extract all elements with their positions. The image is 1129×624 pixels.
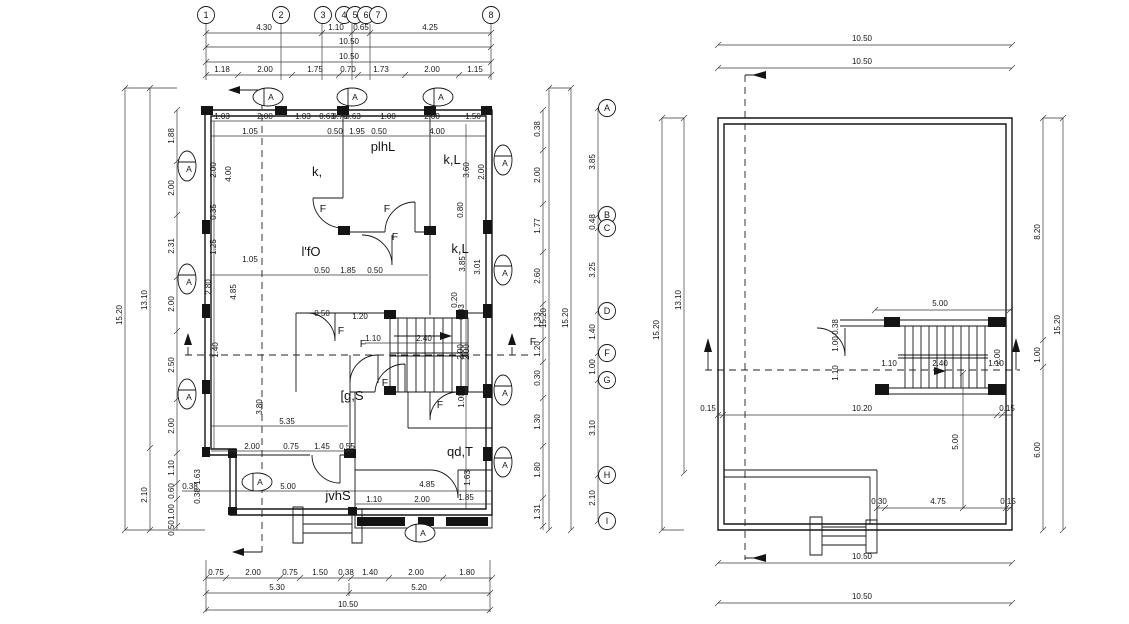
grid-label: 7 (375, 10, 380, 20)
dim-label: 3.01 (473, 259, 482, 275)
dim-label: 0.38 (338, 568, 354, 577)
dim-label: 1.10 (881, 359, 897, 368)
dim-label: 2.00 (424, 65, 440, 74)
dim-label: 1.00 (167, 504, 176, 520)
dim-int-g: 1.102.001.85 (366, 493, 474, 504)
dim-label: 1.88 (167, 128, 176, 144)
dim-label: 1.10 (167, 460, 176, 476)
window-tag: A (257, 477, 263, 487)
dim-label: 2.00 (167, 180, 176, 196)
dim-label: 5.35 (279, 417, 295, 426)
dim-label: 1.00 (457, 392, 466, 408)
dim-label: 2.10 (140, 487, 149, 503)
window-tag: A (502, 268, 508, 278)
dim-stair-center: 1.102.401.10 (881, 359, 1004, 368)
section-arrow (752, 71, 766, 79)
section-arrow (752, 554, 766, 562)
dim-label: 1.03 (295, 112, 311, 121)
dim-label: 1.20 (352, 312, 368, 321)
door-tag: F (360, 338, 366, 350)
dim-label: 10.50 (338, 600, 359, 609)
dim-label: 10.50 (339, 37, 360, 46)
dim-label: 0.48 (588, 214, 597, 230)
dim-label: 2.00 (257, 65, 273, 74)
room-label: k,L (451, 241, 468, 256)
dim-bottom1: 10.50 (852, 552, 873, 561)
dim-label: 1.00 (831, 336, 840, 352)
dim-label: 1.85 (458, 493, 474, 502)
dim-label: 1.03 (214, 112, 230, 121)
dim-label: 1.10 (328, 23, 344, 32)
dim-label: 0.38 (533, 121, 542, 137)
door-tag: F (392, 231, 398, 243)
room-label: k,L (443, 152, 460, 167)
section-arrow (1012, 338, 1020, 352)
stair-direction-arrow (934, 367, 946, 375)
grid-label: 5 (352, 10, 357, 20)
dim-label: 1.77 (533, 218, 542, 234)
dim-label: 2.10 (588, 490, 597, 506)
column-block (988, 317, 1006, 327)
dim-label: 0.55 (339, 442, 355, 451)
dim-label: 0.38 (193, 488, 202, 504)
room-label: plhL (371, 139, 396, 154)
dim-label: 1.45 (314, 442, 330, 451)
dim-label: 3.25 (588, 262, 597, 278)
dim-label: 4.30 (256, 23, 272, 32)
dim-label: 0.30 (533, 370, 542, 386)
door-tag: F (530, 336, 536, 348)
column-block (884, 317, 900, 327)
column-block (202, 220, 210, 234)
dim-label: 1.05 (242, 255, 258, 264)
dim-label: 10.50 (339, 52, 360, 61)
dim-label: 4.00 (224, 166, 233, 182)
dim-label: 1.30 (533, 414, 542, 430)
dim-label: 15.20 (115, 304, 124, 325)
dim-label: 6.00 (1033, 442, 1042, 458)
dim-label: 2.00 (209, 162, 218, 178)
dim-label: 13.10 (140, 289, 149, 310)
dim-label: 2.00 (477, 164, 486, 180)
dim-label: 0.15 (999, 404, 1015, 413)
dim-label: 1.25 (209, 239, 218, 255)
dim-label: 5.00 (280, 482, 296, 491)
section-arrow (704, 338, 712, 352)
door-tag: F (382, 377, 388, 389)
grid-label: 8 (488, 10, 493, 20)
window-tag: A (502, 460, 508, 470)
dim-label: 1.40 (362, 568, 378, 577)
dim-right-outer: 15.2015.20 (539, 307, 570, 328)
dim-label: 4.75 (930, 497, 946, 506)
column-block (483, 384, 492, 398)
dim-label: 0.75 (282, 568, 298, 577)
window-tag: A (502, 388, 508, 398)
grid-label: 6 (363, 10, 368, 20)
dim-label: 1.00 (588, 359, 597, 375)
window-tag: A (186, 392, 192, 402)
dim-label: 3.85 (588, 154, 597, 170)
dim-right-chain: 8.201.006.00 (1033, 224, 1042, 458)
room-label: l'fO (301, 244, 320, 259)
dim-label: 0.50 (367, 266, 383, 275)
grid-label: 3 (320, 10, 325, 20)
dim-label: 0.50 (314, 266, 330, 275)
grid-label: B (604, 210, 610, 220)
dim-left-chain: 1.882.002.312.002.502.001.100.601.000.50 (167, 128, 176, 536)
dim-label: 0.50 (327, 127, 343, 136)
entrance-steps (810, 517, 877, 555)
grid-label: I (606, 516, 609, 526)
dim-label: 0.63 (345, 112, 361, 121)
exterior-wall-outline (718, 118, 1012, 530)
dim-label: 2.60 (533, 268, 542, 284)
grid-label: C (604, 223, 611, 233)
room-label: k, (312, 164, 322, 179)
stair-direction-arrow (440, 332, 452, 340)
dim-label: 1.10 (366, 495, 382, 504)
column-block (228, 449, 237, 458)
dim-label: 10.50 (852, 34, 873, 43)
grid-label: 2 (278, 10, 283, 20)
dim-label: 2.00 (408, 568, 424, 577)
dim-label: 0.35 (209, 204, 218, 220)
dim-bottom3: 10.50 (338, 600, 359, 609)
dim-label: 3.10 (588, 420, 597, 436)
dim-label: 0.30 (871, 497, 887, 506)
column-block (338, 226, 350, 235)
dim-label: 1.00 (380, 112, 396, 121)
room-label: [g,S (340, 388, 363, 403)
dim-label: 2.31 (167, 238, 176, 254)
dim-label: 4.85 (229, 284, 238, 300)
dim-label: 2.40 (932, 359, 948, 368)
dim-int-d: 0.501.20 (314, 309, 368, 321)
column-block (384, 310, 396, 319)
dim-top4: 1.182.001.750.701.732.001.15 (214, 65, 483, 74)
drawing-canvas: 12345678 ABCDFGHI 4.301.100.654.25 10.50… (0, 0, 1129, 624)
dim-label: 0.75 (208, 568, 224, 577)
dim-label: 1.18 (214, 65, 230, 74)
dim-label: 2.00 (167, 296, 176, 312)
staircase (817, 320, 1006, 394)
dim-label: 1.10 (831, 365, 840, 381)
dim-label: 3.60 (462, 162, 471, 178)
grid-label: A (604, 103, 610, 113)
dim-label: 5.00 (932, 299, 948, 308)
dim-label: 0.65 (353, 23, 369, 32)
column-block (483, 447, 492, 461)
grid-row-labels: ABCDFGHI (603, 103, 610, 526)
window-tag: A (186, 164, 192, 174)
dim-label: 1.40 (211, 342, 220, 358)
dim-label: 10.50 (852, 57, 873, 66)
column-block (483, 220, 492, 234)
dim-label: 1.00 (1033, 347, 1042, 363)
dim-label: 5.20 (411, 583, 427, 592)
window-tag: A (352, 92, 358, 102)
dim-label: 4.85 (419, 480, 435, 489)
dim-int-e: 5.352.000.751.450.55 (244, 417, 355, 451)
grid-label: H (604, 470, 611, 480)
dim-label: 0.50 (371, 127, 387, 136)
dim-label: 8.20 (1033, 224, 1042, 240)
dim-label: 15.20 (561, 307, 570, 328)
door-tag: F (437, 399, 443, 411)
section-arrow (232, 548, 244, 556)
dim-label: 2.00 (993, 349, 1002, 365)
grid-label: 4 (341, 10, 346, 20)
dim-label: 10.20 (852, 404, 873, 413)
dim-top3: 10.50 (339, 52, 360, 61)
dim-label: 1.31 (533, 504, 542, 520)
dim-label: 0.50 (314, 309, 330, 318)
window-tag: A (502, 158, 508, 168)
dim-bottom1: 0.752.000.751.500.381.402.001.80 (208, 568, 475, 577)
dim-label: 1.75 (307, 65, 323, 74)
dim-label: 2.80 (204, 279, 213, 295)
room-label: jvhS (324, 488, 351, 503)
dim-label: 15.20 (1053, 314, 1062, 335)
column-block (988, 384, 1006, 395)
column-block (228, 507, 237, 515)
grid-label: D (604, 306, 611, 316)
dim-int-f: 0.385.004.85 (182, 480, 435, 491)
dim-top1: 10.50 (852, 34, 873, 43)
column-block (275, 106, 287, 115)
window-tag: A (420, 528, 426, 538)
dim-label: 1.80 (459, 568, 475, 577)
column-block (201, 106, 213, 115)
column-block (348, 507, 357, 515)
dim-label: 3.85 (458, 256, 467, 272)
dim-stair-rot: 2.00 (993, 349, 1002, 365)
dim-label: 2.50 (167, 357, 176, 373)
dim-left-outer: 15.20 (115, 304, 124, 325)
dim-label: 0.70 (340, 65, 356, 74)
column-block (202, 380, 210, 394)
dim-label: 0.15 (700, 404, 716, 413)
door-tag: F (384, 203, 390, 215)
grid-label: G (603, 375, 610, 385)
grid-label: 1 (203, 10, 208, 20)
dim-label: 10.50 (852, 592, 873, 601)
dim-bottom2: 10.50 (852, 592, 873, 601)
dim-label: 2.00 (244, 442, 260, 451)
column-block (483, 304, 492, 318)
door-tag: F (338, 325, 344, 337)
dim-label: 13.10 (674, 289, 683, 310)
section-arrow (184, 333, 192, 345)
dim-label: 5.00 (951, 434, 960, 450)
dim-top2: 10.50 (852, 57, 873, 66)
window-tag: A (186, 277, 192, 287)
dim-label: 2.00 (167, 418, 176, 434)
floor-plan-drawing: 12345678 ABCDFGHI 4.301.100.654.25 10.50… (0, 0, 1129, 624)
dim-stair-center: 1.102.40 (365, 334, 432, 343)
dim-right-rows: 3.850.483.251.401.003.102.10 (588, 154, 597, 506)
right-plan: 10.50 10.50 10.50 10.50 15.2013.10 8.201… (652, 34, 1066, 606)
dim-right-outer: 15.20 (1053, 314, 1062, 335)
dim-label: 2.00 (414, 495, 430, 504)
dim-mid-vert: 5.00 (951, 434, 960, 450)
dim-left: 15.2013.10 (652, 289, 683, 340)
dim-label: 0.83 (457, 304, 466, 320)
dim-bottom2: 5.305.20 (269, 583, 427, 592)
column-block (202, 447, 210, 457)
dim-low: 0.304.750.15 (871, 497, 1016, 506)
door-tag: F (320, 203, 326, 215)
dim-label: 15.20 (652, 319, 661, 340)
dim-label: 3.80 (255, 399, 264, 415)
dim-label: 1.40 (588, 324, 597, 340)
door-swings (307, 198, 458, 498)
dim-label: 1.73 (373, 65, 389, 74)
dim-label: 10.50 (852, 552, 873, 561)
dim-label: 0.80 (456, 202, 465, 218)
dim-right-chain: 0.382.001.772.601.331.200.301.301.801.31 (533, 121, 542, 520)
section-line-stubs (708, 75, 1016, 558)
dim-label: 0.15 (1000, 497, 1016, 506)
dim-stair-top: 5.00 (932, 299, 948, 308)
left-plan: 12345678 ABCDFGHI 4.301.100.654.25 10.50… (115, 7, 616, 614)
dim-label: 2.00 (257, 112, 273, 121)
window-tag: A (268, 92, 274, 102)
column-block (424, 226, 436, 235)
dim-label: 1.85 (340, 266, 356, 275)
dim-top2: 10.50 (339, 37, 360, 46)
dim-label: 4.25 (422, 23, 438, 32)
dim-label: 1.63 (463, 470, 472, 486)
dim-label: 0.38 (831, 319, 840, 335)
section-arrow (508, 333, 516, 345)
dim-label: 1.10 (365, 334, 381, 343)
dim-label: 1.50 (312, 568, 328, 577)
dim-left-mid: 13.102.10 (140, 289, 149, 502)
sill-hatch-bar (357, 517, 405, 526)
dim-label: 2.00 (462, 344, 471, 360)
dim-label: 2.00 (424, 112, 440, 121)
dim-label: 1.15 (467, 65, 483, 74)
sill-hatch-bar (446, 517, 488, 526)
dim-top1: 4.301.100.654.25 (256, 23, 438, 32)
dim-label: 1.63 (193, 469, 202, 485)
window-tag: A (438, 92, 444, 102)
dim-label: 2.40 (416, 334, 432, 343)
dim-int-b: 1.050.501.950.504.00 (242, 127, 445, 136)
dim-label: 5.30 (269, 583, 285, 592)
dim-label: 1.50 (465, 112, 481, 121)
dim-label: 1.80 (533, 462, 542, 478)
dim-mid: 0.1510.200.15 (700, 404, 1015, 413)
entrance-steps (293, 507, 362, 543)
dim-label: 2.00 (245, 568, 261, 577)
section-arrow (228, 86, 240, 94)
dim-label: 1.95 (349, 127, 365, 136)
dim-label: 2.00 (533, 167, 542, 183)
room-label: qd,T (447, 444, 473, 459)
dim-label: 0.75 (283, 442, 299, 451)
dim-label: 1.05 (242, 127, 258, 136)
dim-stair-left: 0.381.001.10 (831, 319, 840, 381)
column-block (202, 304, 210, 318)
lower-room-walls (724, 470, 877, 524)
grid-label: F (604, 348, 610, 358)
dim-label: 1.33 (533, 312, 542, 328)
column-block (875, 384, 889, 395)
column-blocks (875, 317, 1006, 395)
dim-label: 4.00 (429, 127, 445, 136)
dim-label: 0.60 (167, 483, 176, 499)
grid-bubbles-columns (198, 7, 500, 24)
column-block (481, 106, 492, 115)
dim-label: 0.50 (167, 520, 176, 536)
